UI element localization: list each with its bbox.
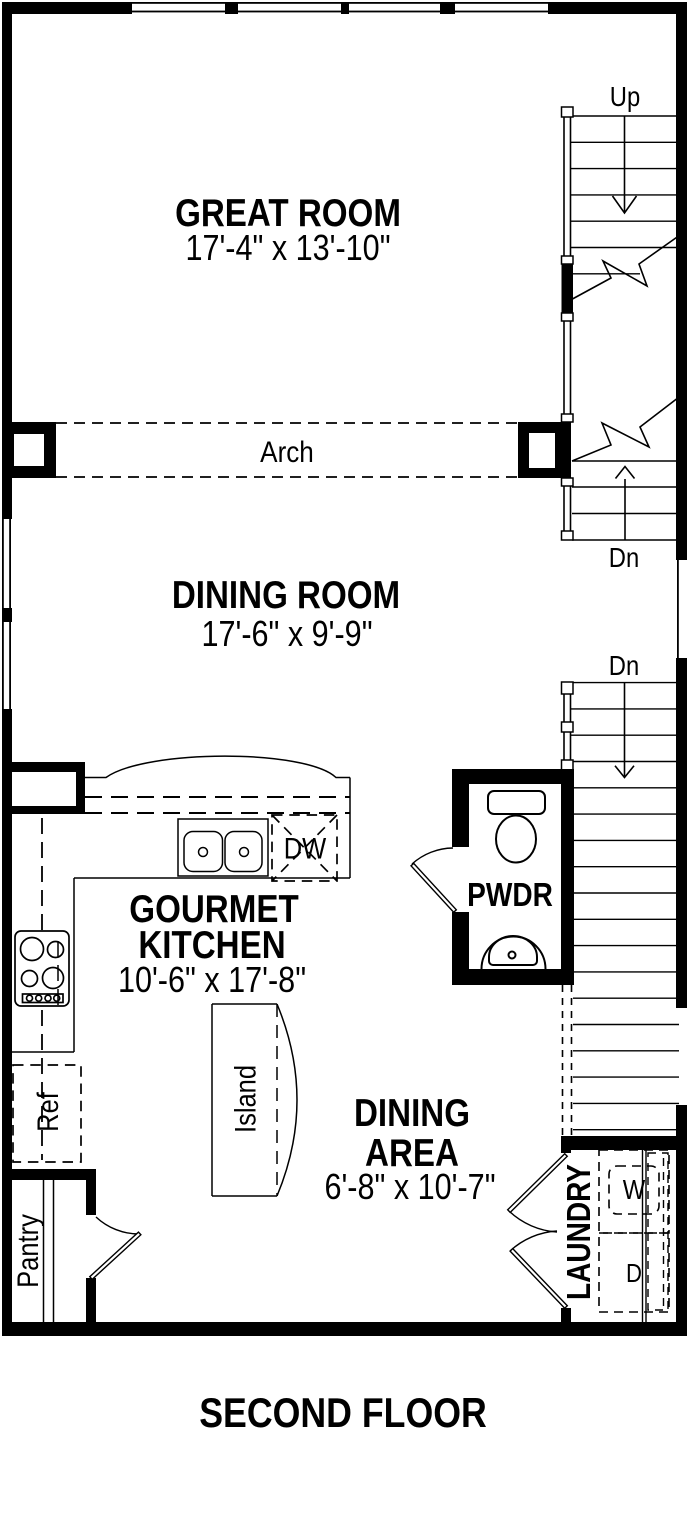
svg-text:Arch: Arch: [260, 435, 314, 468]
svg-text:PWDR: PWDR: [467, 877, 553, 914]
svg-text:DINING ROOM: DINING ROOM: [172, 572, 400, 616]
svg-text:Ref: Ref: [31, 1092, 64, 1132]
svg-text:17'-4" x 13'-10": 17'-4" x 13'-10": [185, 229, 390, 269]
svg-text:SECOND FLOOR: SECOND FLOOR: [199, 1390, 487, 1436]
svg-text:DINING: DINING: [354, 1090, 470, 1134]
svg-text:LAUNDRY: LAUNDRY: [561, 1164, 598, 1300]
svg-text:10'-6" x 17'-8": 10'-6" x 17'-8": [118, 961, 306, 1001]
svg-text:Up: Up: [610, 80, 640, 112]
svg-text:DW: DW: [284, 832, 327, 865]
svg-text:Dn: Dn: [609, 541, 639, 573]
svg-text:D: D: [626, 1259, 642, 1288]
svg-text:Island: Island: [229, 1065, 262, 1133]
svg-text:Dn: Dn: [609, 649, 639, 681]
svg-text:6'-8" x 10'-7": 6'-8" x 10'-7": [324, 1168, 495, 1208]
svg-text:Pantry: Pantry: [11, 1214, 44, 1288]
svg-text:17'-6" x 9'-9": 17'-6" x 9'-9": [201, 615, 372, 655]
